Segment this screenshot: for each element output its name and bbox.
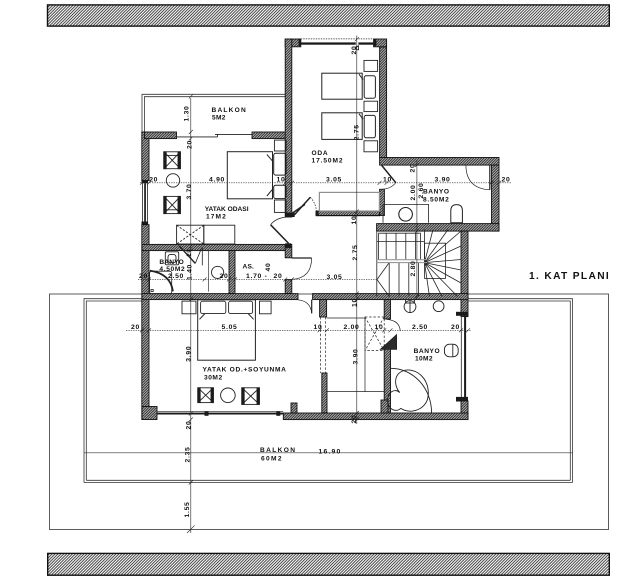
svg-text:40: 40 bbox=[265, 263, 272, 272]
svg-text:8.50M2: 8.50M2 bbox=[423, 197, 450, 204]
svg-text:30M2: 30M2 bbox=[204, 375, 223, 382]
svg-text:2.75: 2.75 bbox=[353, 124, 360, 140]
svg-text:10: 10 bbox=[375, 324, 384, 331]
svg-text:BANYO: BANYO bbox=[159, 259, 184, 266]
svg-text:2.80: 2.80 bbox=[410, 260, 417, 276]
svg-text:20: 20 bbox=[139, 273, 148, 280]
svg-text:ODA: ODA bbox=[312, 150, 329, 157]
svg-text:4.50M2: 4.50M2 bbox=[159, 266, 185, 273]
svg-text:2.00: 2.00 bbox=[410, 184, 417, 200]
svg-text:20: 20 bbox=[131, 324, 140, 331]
svg-text:BALKON: BALKON bbox=[212, 107, 247, 114]
svg-text:20: 20 bbox=[451, 324, 460, 331]
svg-text:60M2: 60M2 bbox=[261, 456, 283, 463]
svg-text:20: 20 bbox=[187, 140, 194, 149]
svg-text:BANYO: BANYO bbox=[414, 348, 441, 355]
svg-text:1.70 -: 1.70 - bbox=[246, 273, 268, 280]
svg-text:2.00: 2.00 bbox=[344, 324, 360, 331]
svg-text:3.90: 3.90 bbox=[435, 176, 451, 183]
svg-text:10M2: 10M2 bbox=[415, 356, 433, 363]
svg-text:17M2: 17M2 bbox=[206, 214, 227, 221]
svg-text:3.70: 3.70 bbox=[186, 183, 193, 199]
svg-text:1.40: 1.40 bbox=[187, 264, 194, 280]
svg-text:10: 10 bbox=[351, 216, 358, 225]
svg-text:3.05: 3.05 bbox=[326, 176, 342, 183]
svg-text:2.50: 2.50 bbox=[168, 273, 184, 280]
svg-text:20: 20 bbox=[351, 415, 358, 424]
svg-text:3.90: 3.90 bbox=[353, 348, 360, 364]
svg-text:YATAK ODASI: YATAK ODASI bbox=[205, 206, 249, 213]
svg-text:10: 10 bbox=[277, 176, 286, 183]
svg-text:BANYO: BANYO bbox=[423, 189, 450, 196]
svg-text:5M2: 5M2 bbox=[212, 115, 226, 122]
svg-text:20: 20 bbox=[185, 421, 192, 430]
svg-text:3.90: 3.90 bbox=[186, 346, 193, 362]
svg-text:1. KAT PLANI: 1. KAT PLANI bbox=[529, 271, 610, 282]
svg-text:2.50: 2.50 bbox=[412, 324, 428, 331]
svg-text:2.75: 2.75 bbox=[352, 244, 359, 260]
svg-text:BALKON: BALKON bbox=[260, 447, 296, 454]
svg-text:17.50M2: 17.50M2 bbox=[312, 158, 344, 165]
svg-text:AS.: AS. bbox=[243, 264, 255, 271]
svg-text:20: 20 bbox=[502, 176, 511, 183]
svg-text:2.35: 2.35 bbox=[184, 446, 191, 462]
svg-text:3.05: 3.05 bbox=[327, 274, 343, 281]
svg-text:20: 20 bbox=[274, 273, 283, 280]
svg-text:20: 20 bbox=[149, 176, 158, 183]
svg-text:YATAK OD.+SOYUNMA: YATAK OD.+SOYUNMA bbox=[203, 367, 287, 374]
svg-text:10: 10 bbox=[383, 176, 392, 183]
svg-text:5.05: 5.05 bbox=[222, 324, 238, 331]
svg-text:16.90: 16.90 bbox=[319, 449, 342, 456]
svg-text:20: 20 bbox=[351, 46, 358, 55]
svg-text:10: 10 bbox=[314, 324, 323, 331]
svg-text:1.30: 1.30 bbox=[184, 105, 191, 121]
svg-text:1.55: 1.55 bbox=[184, 501, 191, 517]
svg-text:20: 20 bbox=[220, 273, 229, 280]
svg-text:10: 10 bbox=[352, 298, 359, 307]
svg-text:20: 20 bbox=[410, 164, 417, 173]
svg-text:4.90: 4.90 bbox=[209, 176, 225, 183]
